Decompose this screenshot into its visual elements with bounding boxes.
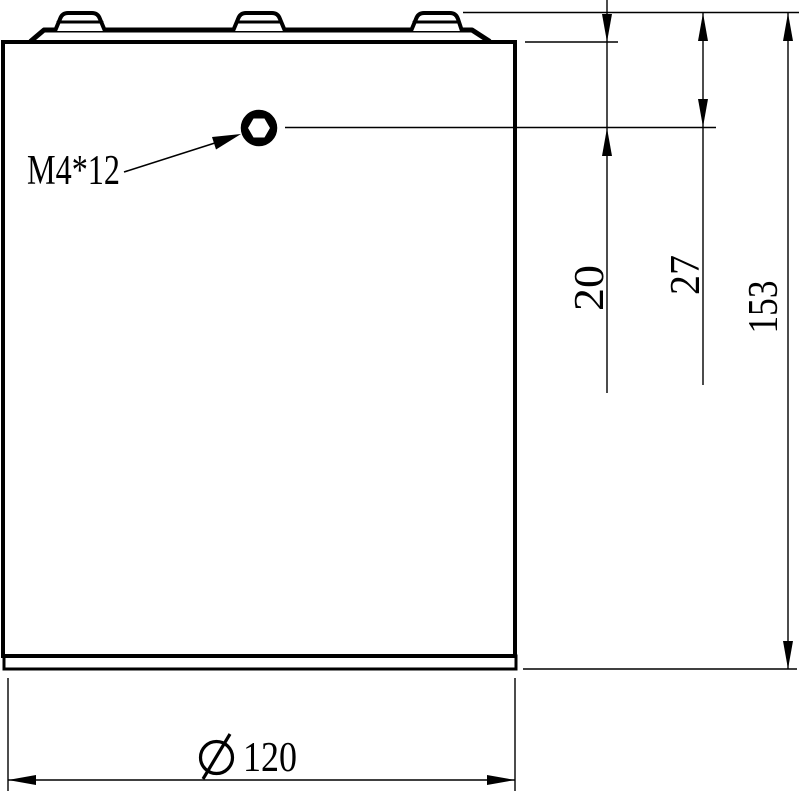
technical-drawing-page: M4*12 20 27 153 120 <box>0 0 800 792</box>
dim-diameter-arrowhead-right <box>487 775 515 785</box>
callout-leader-line <box>124 142 218 172</box>
dim-153-arrowhead-top <box>783 13 793 41</box>
screw-head-icon <box>244 113 274 143</box>
dim-153-arrowhead-bottom <box>783 641 793 669</box>
callout-label: M4*12 <box>27 148 120 194</box>
dim-text-153: 153 <box>741 281 787 334</box>
dim-diameter-arrowhead-left <box>8 775 36 785</box>
dim-20-arrowhead-bottom <box>602 128 612 156</box>
dim-text-diameter: 120 <box>243 735 297 781</box>
dim-27-arrowhead-bottom <box>698 99 708 127</box>
dim-text-27: 27 <box>663 255 709 295</box>
technical-drawing-canvas: M4*12 20 27 153 120 <box>0 0 800 792</box>
dim-20-arrowhead-top <box>602 14 612 42</box>
dim-text-20: 20 <box>567 265 613 311</box>
callout-leader-arrowhead <box>212 134 241 150</box>
diameter-symbol-icon <box>201 734 233 779</box>
dim-27-arrowhead-top <box>698 13 708 41</box>
screw-hex-socket <box>246 117 272 140</box>
housing-top-cap <box>31 30 489 41</box>
